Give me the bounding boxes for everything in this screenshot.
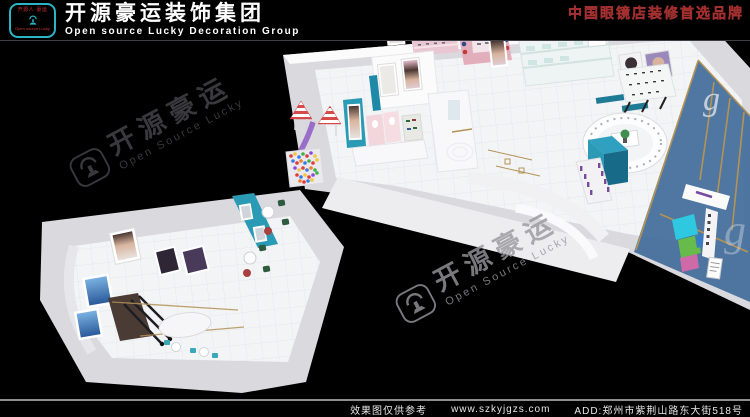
footer-address: ADD:郑州市紫荆山路东大街518号 bbox=[574, 402, 743, 417]
render-page: g g bbox=[0, 0, 750, 417]
company-title-en: Open source Lucky Decoration Group bbox=[65, 27, 300, 38]
company-logo: 开源人·豪运 Open source Lucky bbox=[9, 3, 56, 38]
ball-pit bbox=[286, 148, 324, 187]
product-shelf bbox=[402, 114, 423, 141]
footer-url: www.szkyjgzs.com bbox=[451, 404, 550, 415]
teal-wall-poster bbox=[343, 98, 366, 148]
footer-bar: 效果图仅供参考 www.szkyjgzs.com ADD:郑州市紫荆山路东大街5… bbox=[0, 399, 750, 417]
footer-note: 效果图仅供参考 bbox=[350, 402, 427, 417]
logo-emblem-icon bbox=[25, 13, 41, 27]
glass-letter-large: g bbox=[703, 81, 720, 118]
plant bbox=[621, 130, 630, 139]
header-bar: 开源人·豪运 Open source Lucky 开源豪运装饰集团 Open s… bbox=[0, 0, 750, 41]
company-titles: 开源豪运装饰集团 Open source Lucky Decoration Gr… bbox=[65, 3, 300, 38]
company-title-cn: 开源豪运装饰集团 bbox=[65, 3, 300, 25]
glass-letter-faint: g bbox=[724, 206, 746, 255]
small-white-card bbox=[707, 257, 723, 279]
slogan-text: 中国眼镜店装修首选品牌 bbox=[568, 3, 744, 23]
store-3d-render: g g bbox=[0, 0, 750, 417]
logo-bottom-text: Open source Lucky bbox=[15, 27, 50, 31]
